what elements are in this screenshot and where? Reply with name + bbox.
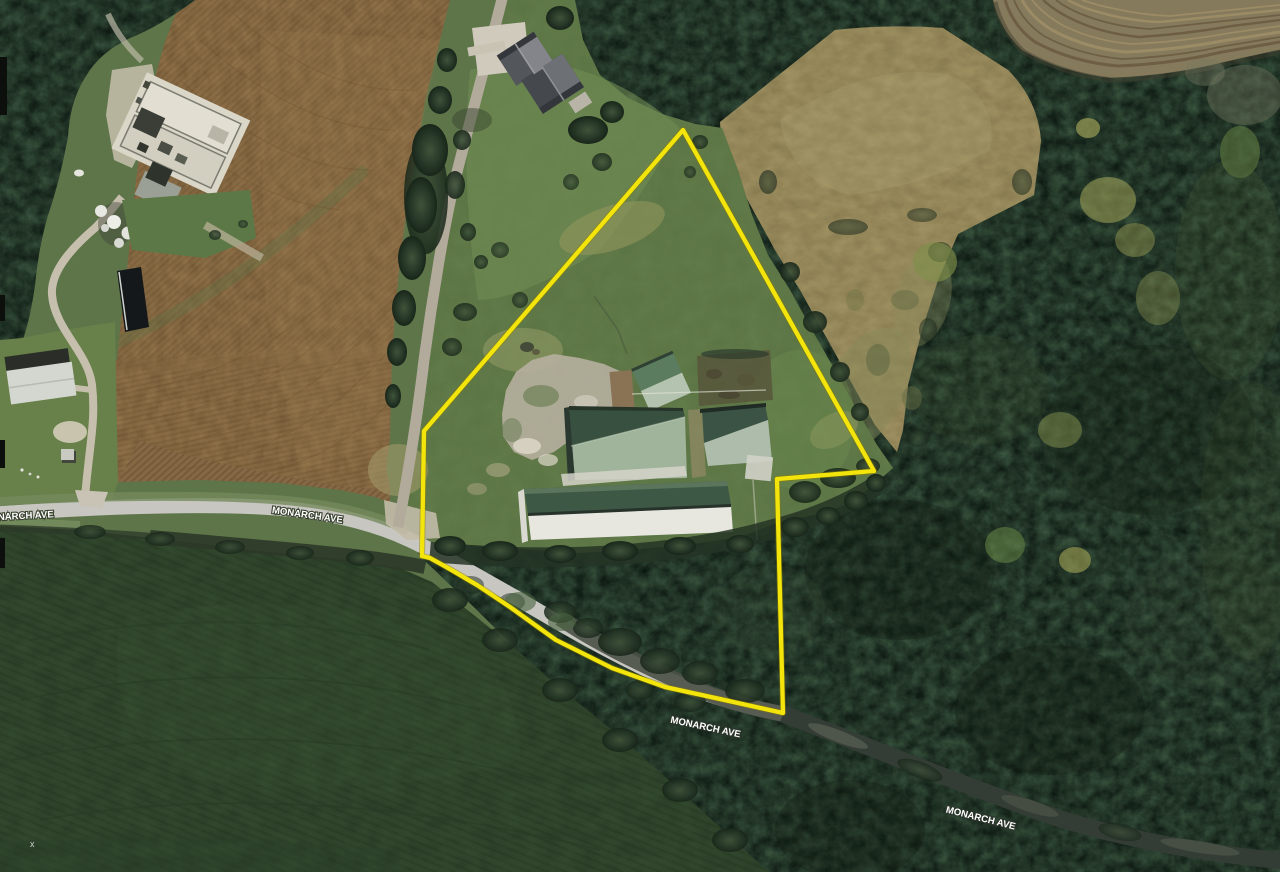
svg-text:x: x <box>30 839 35 849</box>
